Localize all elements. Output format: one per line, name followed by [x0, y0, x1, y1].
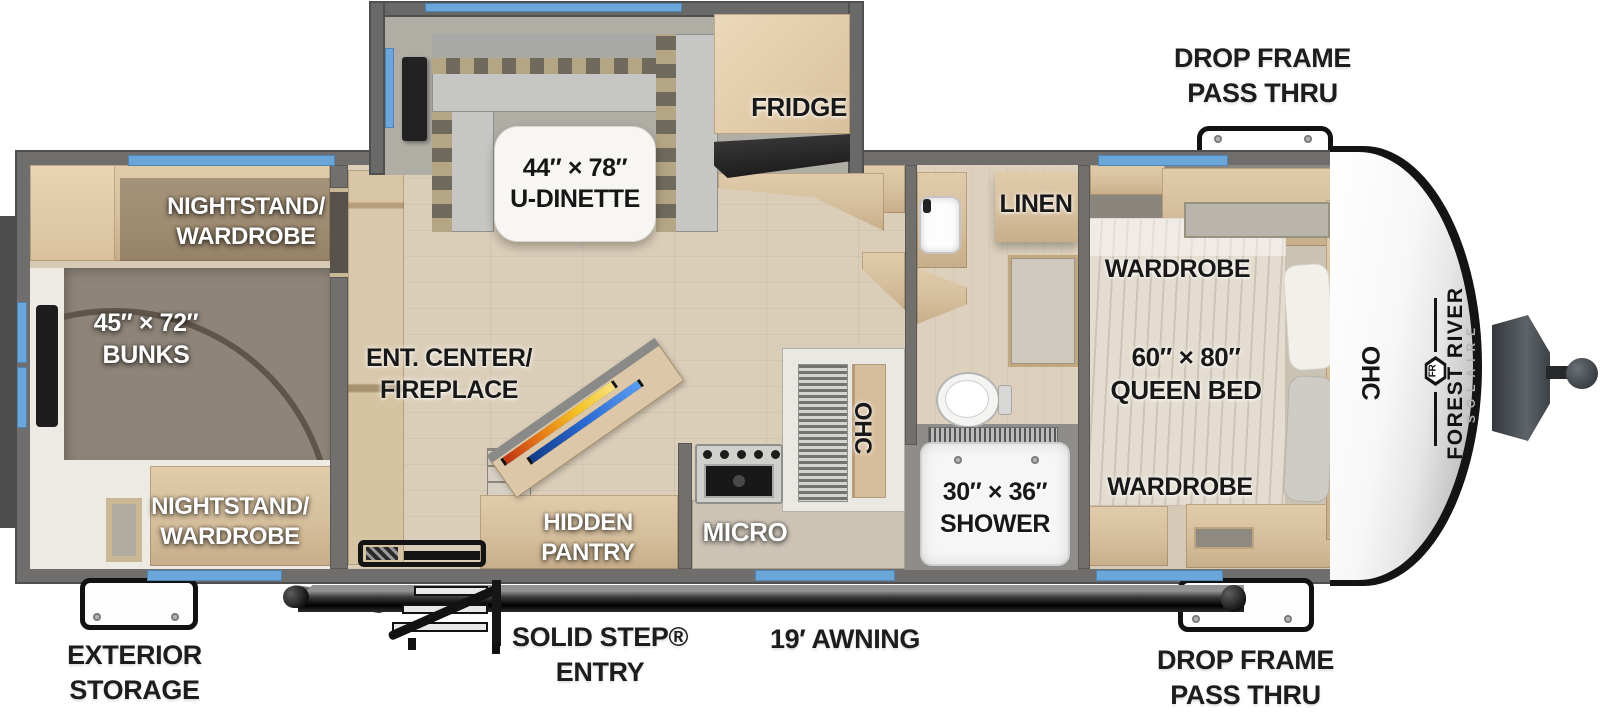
toilet-hinge: [998, 385, 1012, 415]
dinette-bench-right: [656, 34, 718, 232]
oven-window: [704, 464, 774, 498]
bath-wall-left: [905, 165, 917, 445]
cap-ohc-label: OHC: [1359, 333, 1385, 413]
burner-3: [737, 450, 746, 459]
brand-logo-monogram: FR: [1428, 359, 1444, 384]
window-bedroom-bottom: [1096, 570, 1223, 581]
wardrobe-sliding-door: [1184, 202, 1330, 238]
fridge-label: FRIDGE: [749, 91, 849, 124]
storage-screw-left: [93, 613, 101, 621]
u-dinette-label: 44″ × 78″ U-DINETTE: [510, 153, 640, 216]
awning-arm-cap: [283, 586, 309, 608]
brand-line-upper: [1434, 298, 1437, 352]
entry-door-plate: [366, 547, 398, 560]
window-bunk-top: [128, 155, 335, 166]
handle-screw-right: [1304, 135, 1312, 143]
bed-chest-left: [1086, 506, 1168, 566]
bunks-label: 45″ × 72″ BUNKS: [66, 308, 226, 371]
handle-screw-left: [1214, 135, 1222, 143]
dinette-tv: [402, 57, 427, 141]
window-main-top-right: [1098, 155, 1228, 166]
exterior-storage-label: EXTERIOR STORAGE: [42, 638, 227, 708]
pillow-1: [1282, 263, 1335, 372]
nightstand-top-label: NIGHTSTAND/ WARDROBE: [146, 192, 346, 252]
hidden-pantry-label: HIDDEN PANTRY: [518, 508, 658, 568]
burner-2: [720, 450, 729, 459]
dinette-table: 44″ × 78″ U-DINETTE: [494, 126, 656, 242]
brand-model-label: SOLAIRE: [1464, 247, 1484, 497]
wardrobe-bottom-label: WARDROBE: [1089, 472, 1271, 504]
window-slide-left: [385, 48, 394, 128]
window-rear-lower: [17, 367, 27, 428]
bath-corner-cabinet: [1008, 255, 1078, 367]
stove: [695, 444, 783, 504]
slide-wall-left: [371, 3, 383, 173]
bunk-wall-bottom: [330, 277, 348, 569]
bed-chest-slot: [1194, 527, 1254, 549]
window-kitchen-bottom: [755, 570, 895, 581]
step-foot-left: [408, 638, 416, 650]
awning-end-cap: [1221, 585, 1246, 612]
wardrobe-top-label: WARDROBE: [1090, 254, 1265, 286]
ent-center-label: ENT. CENTER/ FIREPLACE: [349, 343, 549, 406]
bunk-cabinet-left: [30, 165, 115, 261]
toilet-bowl: [936, 372, 1000, 428]
shower-screw-left: [954, 456, 962, 464]
kitchen-halfwall: [678, 443, 692, 569]
passthru-screw-left: [1192, 615, 1200, 623]
toilet-lid: [945, 380, 989, 418]
drop-frame-bottom-label: DROP FRAME PASS THRU: [1123, 643, 1368, 713]
bunk-tv: [36, 305, 58, 427]
window-bunk-bottom: [147, 570, 282, 581]
shower-label: 30″ × 36″ SHOWER: [920, 477, 1070, 540]
exterior-storage-door: [80, 578, 198, 630]
rear-bumper: [0, 216, 17, 528]
solid-step-assembly: [388, 580, 510, 654]
queen-bed-label: 60″ × 80″ QUEEN BED: [1088, 341, 1284, 407]
kitchen-ohc-label: OHC: [851, 393, 877, 463]
shower-screw-right: [1031, 456, 1039, 464]
hitch-coupler: [1566, 358, 1598, 389]
solid-step-entry-label: SOLID STEP® ENTRY: [495, 620, 705, 690]
bath-faucet: [923, 199, 931, 213]
micro-label: MICRO: [695, 516, 795, 549]
floorplan-canvas: 44″ × 78″ U-DINETTE FRIDGE LINEN 30″ × 3…: [0, 0, 1600, 727]
passthru-screw-right: [1284, 615, 1292, 623]
burner-1: [703, 450, 712, 459]
oven-fan: [733, 475, 745, 487]
bench-right-stripes: [656, 34, 676, 232]
nightstand-bottom-label: NIGHTSTAND/ WARDROBE: [130, 492, 330, 552]
sink-cover-louvers: [798, 364, 848, 502]
propane-tank-cover: [1492, 315, 1550, 441]
bunk-wall-top: [330, 165, 348, 188]
slide-wall-right: [850, 3, 862, 173]
linen-label: LINEN: [986, 189, 1086, 221]
entry-door-bar: [404, 551, 480, 560]
pillow-2: [1283, 375, 1336, 503]
drop-frame-top-label: DROP FRAME PASS THRU: [1140, 41, 1385, 111]
burner-4: [754, 450, 763, 459]
burner-5: [771, 450, 780, 459]
window-slide-top: [425, 3, 682, 12]
window-rear-upper: [17, 302, 27, 363]
awning-label: 19′ AWNING: [765, 622, 925, 657]
brand-line-lower: [1434, 392, 1437, 446]
bedroom-shelf-left: [1090, 165, 1165, 195]
storage-screw-right: [171, 613, 179, 621]
